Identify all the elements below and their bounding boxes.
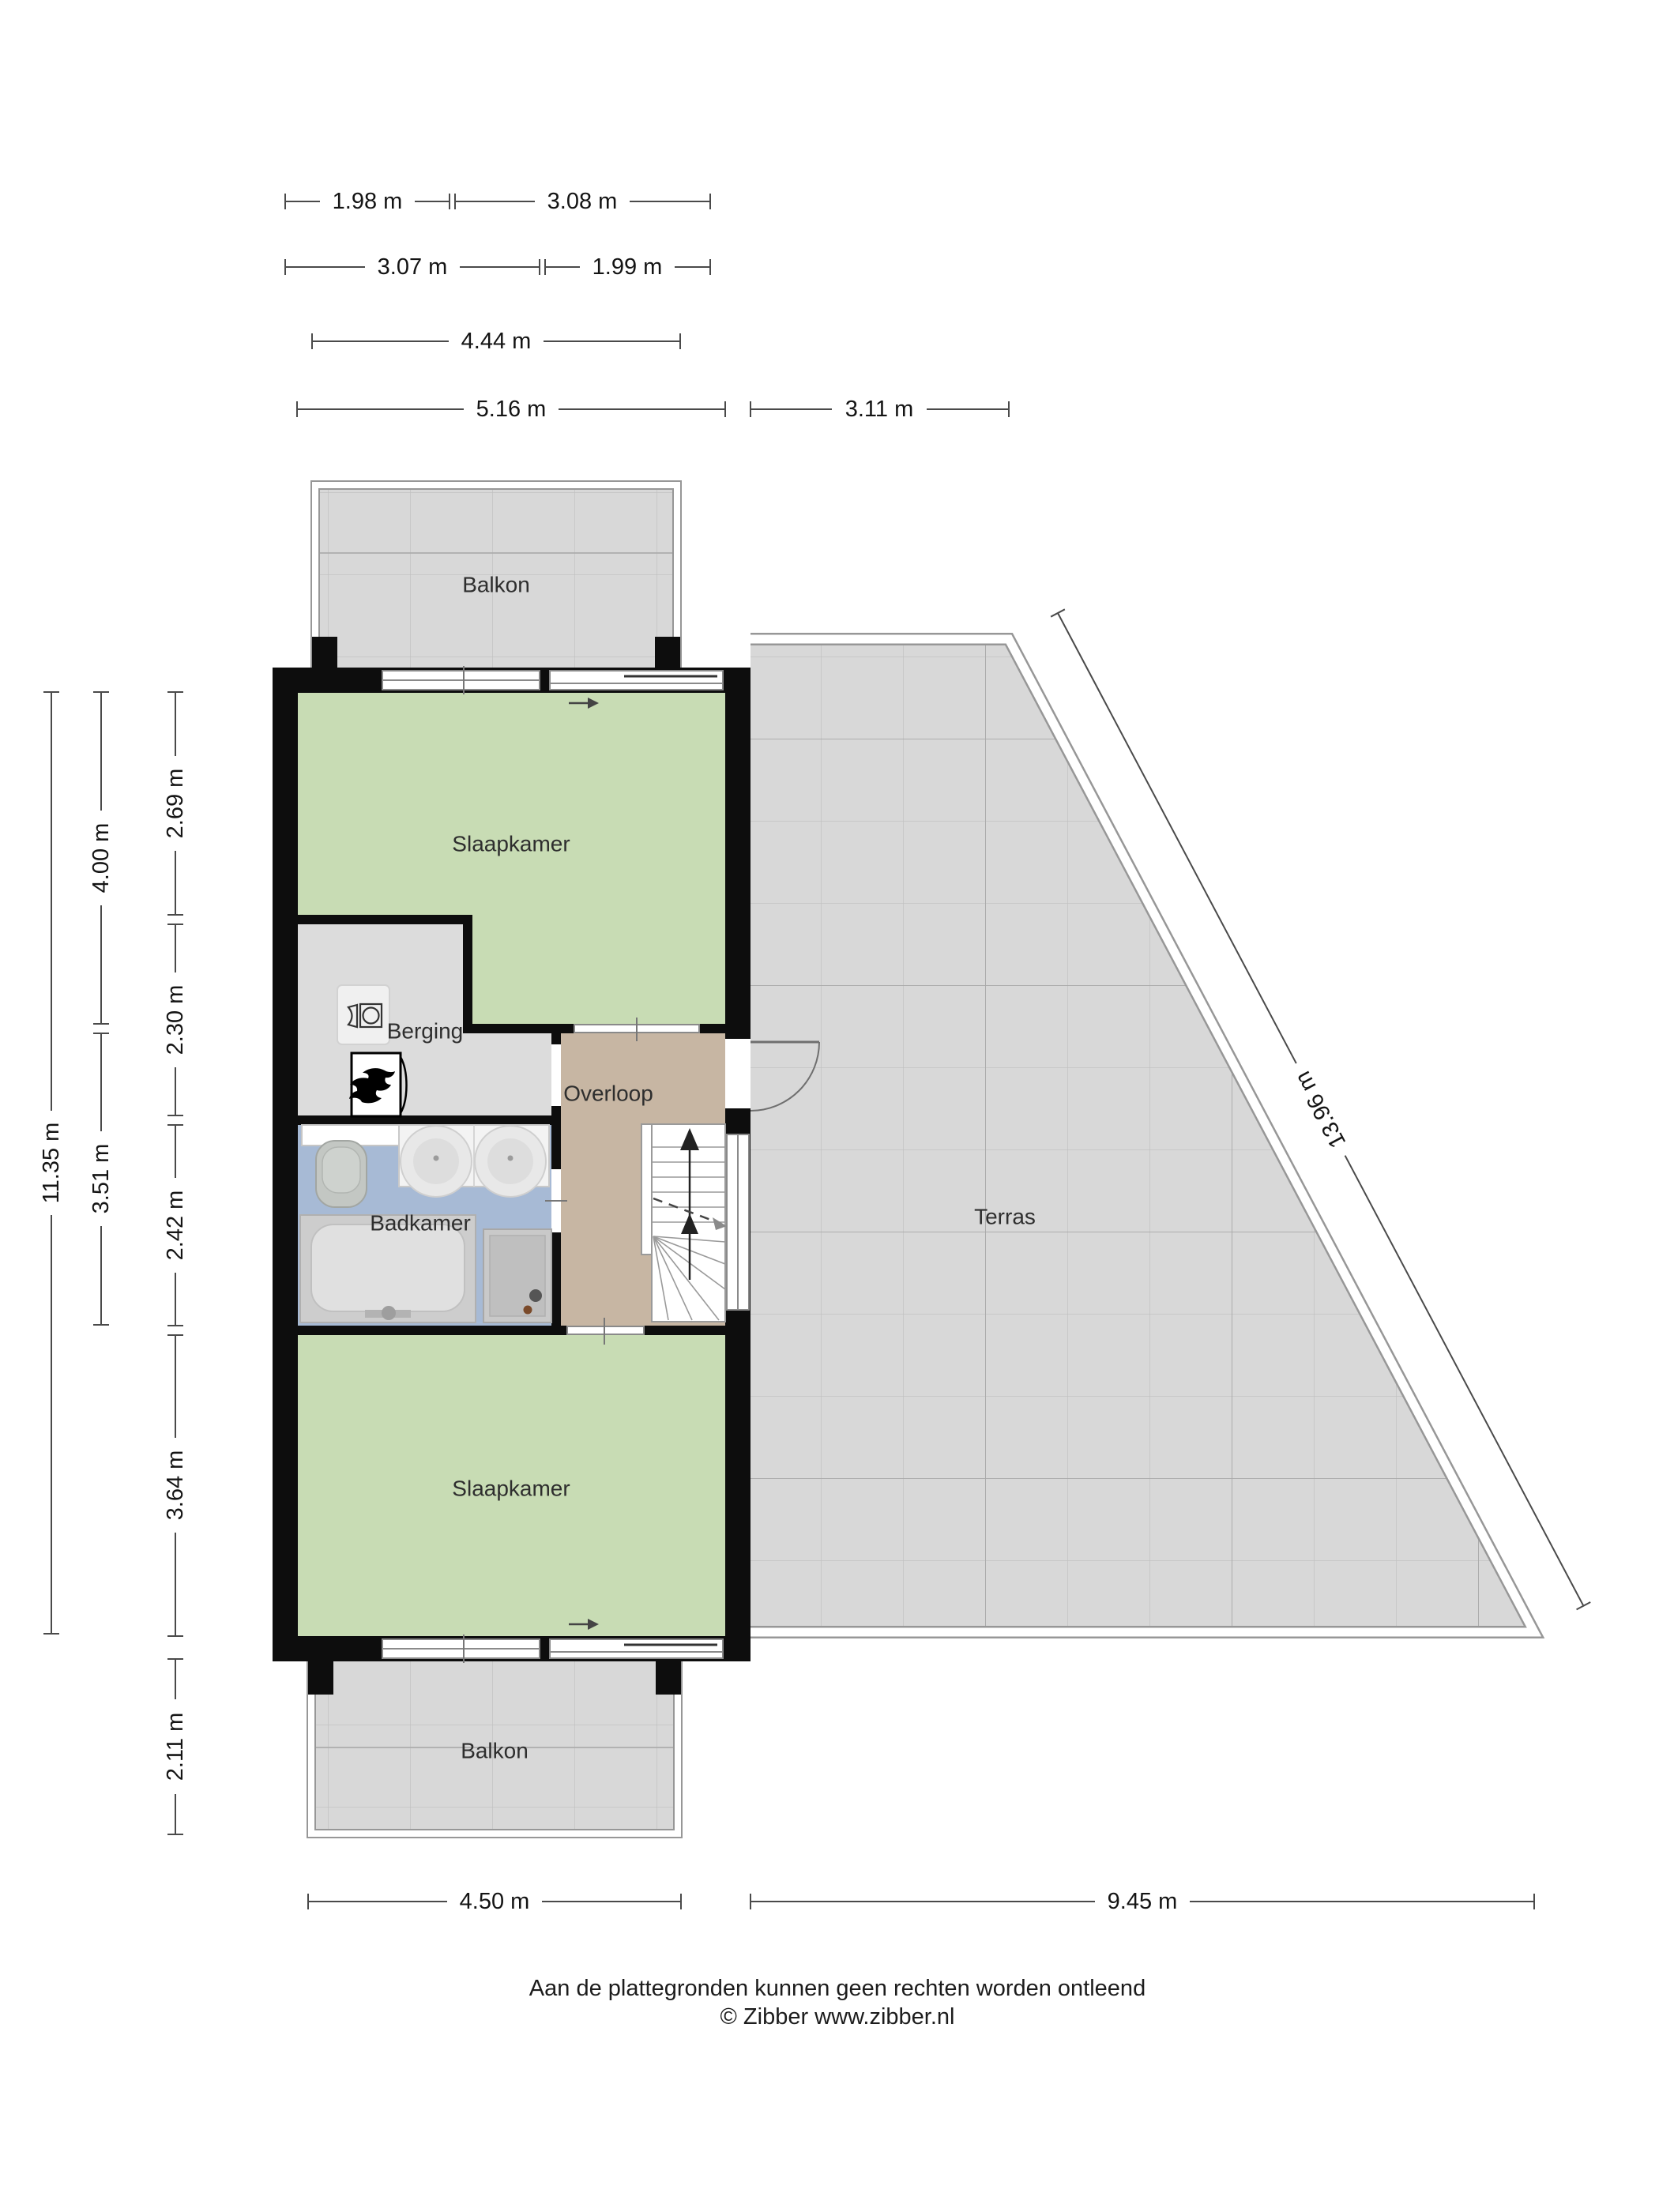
slider-door-top-right <box>550 671 723 690</box>
svg-text:4.00 m: 4.00 m <box>88 823 114 893</box>
dimension-left-total: 11.35 m <box>38 692 65 1634</box>
dimension-left-room2: 2.30 m <box>162 924 189 1115</box>
staircase-up-icon <box>641 1124 727 1322</box>
svg-text:3.11 m: 3.11 m <box>845 397 914 422</box>
balcony-bottom: Balkon <box>308 1661 681 1837</box>
balcony-top: Balkon <box>312 482 680 668</box>
dimension-left-room3: 2.42 m <box>162 1125 189 1326</box>
balcony-top-wall-stub-right <box>655 637 680 668</box>
svg-text:3.07 m: 3.07 m <box>378 254 448 280</box>
dimension-left-upper: 4.00 m <box>88 692 115 1024</box>
dimension-top-row3: 4.44 m <box>312 328 680 355</box>
room-label-balkon-bottom: Balkon <box>461 1739 529 1763</box>
footer-credit: © Zibber www.zibber.nl <box>720 2004 955 2030</box>
footer-disclaimer: Aan de plattegronden kunnen geen rechten… <box>529 1976 1145 2001</box>
dimension-left-room1: 2.69 m <box>162 692 189 915</box>
svg-text:3.08 m: 3.08 m <box>547 189 618 214</box>
svg-text:2.11 m: 2.11 m <box>163 1713 188 1781</box>
slider-door-bottom-right <box>550 1639 723 1658</box>
svg-text:1.99 m: 1.99 m <box>592 254 663 280</box>
svg-text:5.16 m: 5.16 m <box>476 397 547 422</box>
room-label-badkamer: Badkamer <box>370 1211 471 1236</box>
room-label-balkon-top: Balkon <box>462 573 530 597</box>
svg-text:4.50 m: 4.50 m <box>460 1889 530 1914</box>
door-gap-terras <box>725 1039 750 1108</box>
toilet-icon <box>316 1141 367 1207</box>
shower-icon <box>483 1229 551 1322</box>
svg-text:4.44 m: 4.44 m <box>461 329 532 354</box>
dimension-bottom-left: 4.50 m <box>308 1888 681 1915</box>
dimension-left-balkon: 2.11 m <box>162 1659 189 1834</box>
wall-left <box>273 668 298 1661</box>
dimension-top-row2-right: 1.99 m <box>545 254 710 280</box>
wall-slaapkamer-bottom-top <box>298 1326 725 1335</box>
dimension-left-lower: 3.51 m <box>88 1033 115 1325</box>
dimension-top-row2-left: 3.07 m <box>285 254 540 280</box>
room-label-slaapkamer-bottom: Slaapkamer <box>452 1477 570 1501</box>
dimension-top-row4-right: 3.11 m <box>750 396 1009 423</box>
wall-berging-badkamer <box>298 1115 551 1125</box>
wall-berging-top <box>298 915 472 924</box>
room-label-overloop: Overloop <box>563 1082 653 1106</box>
wall-berging-slaapkamer <box>463 915 472 1033</box>
washing-machine-icon <box>337 985 389 1044</box>
terras-floor-grid <box>750 639 1534 1632</box>
dimension-top-row1-left: 1.98 m <box>285 188 450 215</box>
svg-text:3.64 m: 3.64 m <box>163 1450 188 1521</box>
room-slaapkamer-top-floor-ext <box>472 915 725 1024</box>
door-gap-berging <box>551 1044 561 1106</box>
room-label-terras: Terras <box>974 1205 1036 1229</box>
floor-plan-svg: Terras Balkon Balkon <box>0 0 1659 2212</box>
boiler-flame-icon <box>349 1053 407 1116</box>
balcony-bottom-wall-stub-right <box>656 1661 681 1695</box>
balcony-top-wall-stub-left <box>312 637 337 668</box>
dimension-left-room4: 3.64 m <box>162 1335 189 1636</box>
room-label-berging: Berging <box>387 1019 464 1044</box>
dimension-top-row4-left: 5.16 m <box>297 396 725 423</box>
svg-text:2.42 m: 2.42 m <box>163 1191 188 1261</box>
svg-text:2.30 m: 2.30 m <box>163 985 188 1055</box>
terras-area: Terras <box>750 639 1534 1632</box>
dimension-top-row1-right: 3.08 m <box>455 188 710 215</box>
room-slaapkamer-top-floor <box>298 693 725 915</box>
floor-plan-page: Terras Balkon Balkon <box>0 0 1659 2212</box>
svg-text:11.35 m: 11.35 m <box>39 1123 64 1204</box>
balcony-bottom-wall-stub-left <box>308 1661 333 1695</box>
double-washbasin-icon <box>399 1125 549 1197</box>
dimension-bottom-right: 9.45 m <box>750 1888 1534 1915</box>
window-interior-slaapkamer2 <box>567 1326 644 1334</box>
room-berging-floor-ext <box>463 1033 561 1115</box>
svg-text:2.69 m: 2.69 m <box>163 769 188 839</box>
svg-text:1.98 m: 1.98 m <box>333 189 403 214</box>
svg-text:3.51 m: 3.51 m <box>88 1144 114 1214</box>
svg-text:9.45 m: 9.45 m <box>1108 1889 1178 1914</box>
room-label-slaapkamer-top: Slaapkamer <box>452 832 570 856</box>
